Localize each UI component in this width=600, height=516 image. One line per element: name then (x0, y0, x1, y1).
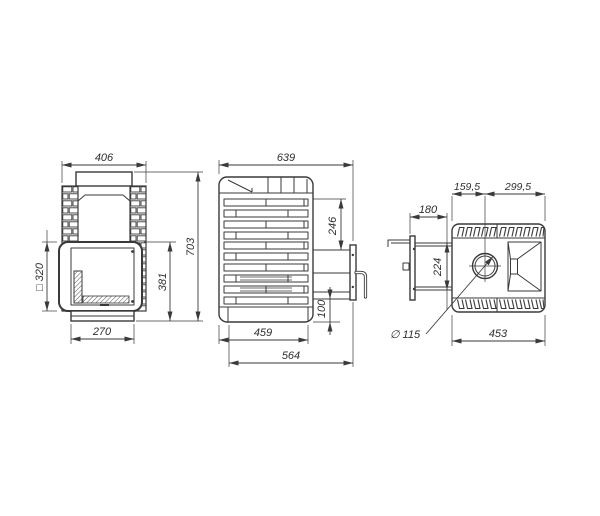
dim-chimney-diameter-label: ∅ 115 (390, 329, 421, 341)
door-plate-top (410, 236, 415, 300)
door-latch-mark (100, 304, 109, 306)
dim-top-width: 453 (452, 315, 545, 346)
dim-base-depth: 459 (219, 325, 308, 344)
dim-door-to-floor-label: 100 (316, 299, 328, 318)
dim-tunnel-width: 224 (432, 243, 447, 290)
door-tunnel-side (313, 245, 366, 300)
dim-tunnel-length-label: 180 (419, 204, 438, 216)
dim-chimney-to-front-label: 299,5 (504, 181, 531, 193)
front-view: 406 703 381 □ 320 270 (34, 152, 203, 344)
top-body (452, 224, 545, 312)
hinge-pin-top (131, 250, 134, 253)
dim-door-to-floor: 100 (313, 287, 340, 335)
dim-door-height-label: 381 (157, 273, 169, 291)
dim-top-to-door: 246 (313, 199, 346, 250)
dim-base-width: 270 (71, 324, 134, 344)
side-view: 639 246 100 459 564 (219, 152, 366, 367)
dim-tunnel-width-label: 224 (432, 258, 444, 277)
dim-side-depth-label: 639 (277, 152, 295, 164)
door-handle-top (388, 240, 410, 247)
latch-knob-top (403, 263, 409, 270)
dim-front-height-label: 703 (185, 237, 197, 256)
hinge-pin-bottom (131, 300, 134, 303)
dim-opening-label: □ 320 (34, 262, 46, 291)
technical-drawing-canvas: 406 703 381 □ 320 270 (0, 0, 600, 516)
dim-front-width-label: 406 (95, 152, 114, 164)
dim-opening: □ 320 (34, 230, 57, 311)
door-handle-side (356, 273, 366, 298)
stove-dimension-drawing-page: 406 703 381 □ 320 270 (0, 0, 600, 516)
top-cap (76, 172, 132, 186)
dim-back-to-chimney-label: 159,5 (454, 181, 480, 193)
grate-strip (83, 296, 129, 303)
dim-base-width-label: 270 (92, 326, 112, 338)
top-view: 159,5 299,5 180 224 453 ∅ 115 (388, 181, 545, 346)
dim-top-width-label: 453 (489, 328, 508, 340)
dim-full-depth-label: 564 (282, 350, 300, 362)
dim-top-to-door-label: 246 (327, 216, 339, 236)
air-channel (74, 271, 82, 303)
lintel-line (78, 195, 130, 201)
dim-door-height: 381 (144, 242, 176, 321)
dim-base-depth-label: 459 (254, 327, 272, 339)
